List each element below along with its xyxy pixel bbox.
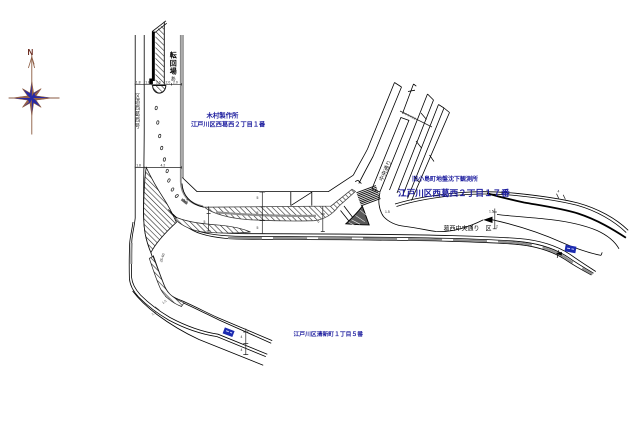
svg-text:江戸川区西葛西２丁目１７番: 江戸川区西葛西２丁目１７番 xyxy=(398,187,510,198)
svg-text:1.5: 1.5 xyxy=(489,210,494,214)
svg-text:4: 4 xyxy=(241,335,243,339)
svg-text:西: 西 xyxy=(135,105,141,112)
svg-text:転: 転 xyxy=(170,51,177,60)
svg-text:2: 2 xyxy=(496,225,498,229)
svg-text:4: 4 xyxy=(241,348,243,352)
svg-text:N: N xyxy=(28,48,34,57)
svg-text:1.5: 1.5 xyxy=(385,210,390,214)
svg-text:回: 回 xyxy=(170,59,177,68)
svg-text:区: 区 xyxy=(135,93,141,100)
svg-text:5: 5 xyxy=(204,220,206,224)
svg-text:西: 西 xyxy=(135,117,141,124)
svg-text:4.2: 4.2 xyxy=(161,163,166,167)
svg-text:号: 号 xyxy=(135,123,141,130)
svg-text:あ: あ xyxy=(171,77,176,83)
svg-text:1.8: 1.8 xyxy=(136,163,141,167)
svg-text:5: 5 xyxy=(257,196,259,200)
svg-text:旧小島町地盤沈下観測所: 旧小島町地盤沈下観測所 xyxy=(412,175,478,183)
svg-text:4: 4 xyxy=(558,190,560,194)
svg-text:5: 5 xyxy=(257,226,259,230)
svg-text:1.8: 1.8 xyxy=(136,80,141,84)
svg-text:6: 6 xyxy=(318,220,320,224)
svg-text:場: 場 xyxy=(170,67,177,76)
svg-text:木村製作所: 木村製作所 xyxy=(206,111,240,120)
svg-text:葛: 葛 xyxy=(135,110,141,118)
svg-text:1.8: 1.8 xyxy=(145,80,150,84)
svg-text:5: 5 xyxy=(257,211,259,215)
svg-text:2.0: 2.0 xyxy=(166,80,171,84)
svg-text:道: 道 xyxy=(135,98,141,106)
svg-text:1.5: 1.5 xyxy=(184,199,189,203)
svg-text:2.6: 2.6 xyxy=(156,80,161,84)
svg-text:江戸川区西葛西２丁目１番: 江戸川区西葛西２丁目１番 xyxy=(191,121,266,129)
svg-text:江戸川区清新町１丁目５番: 江戸川区清新町１丁目５番 xyxy=(294,330,364,338)
svg-text:葛西中央通り 区: 葛西中央通り 区 xyxy=(444,225,492,233)
